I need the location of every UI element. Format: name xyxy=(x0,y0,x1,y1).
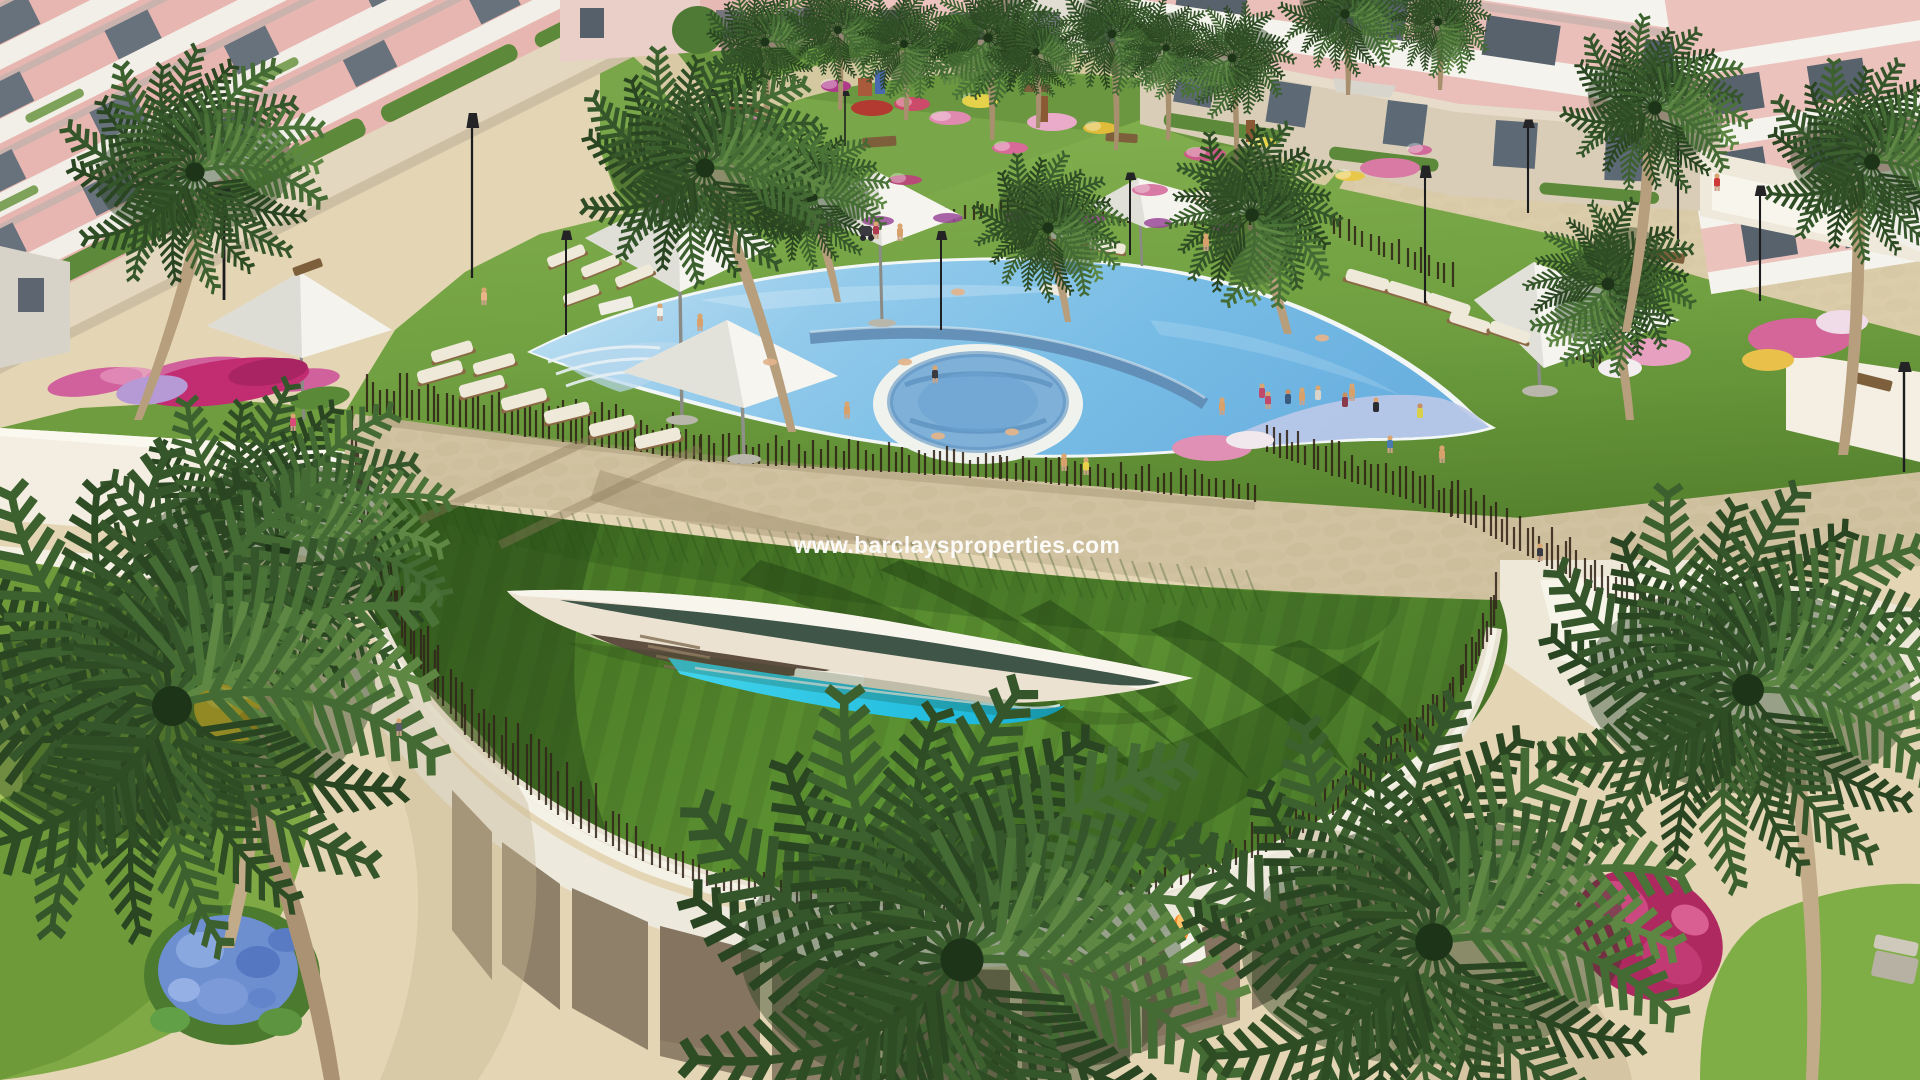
svg-text:www.barclaysproperties.com: www.barclaysproperties.com xyxy=(793,532,1120,558)
